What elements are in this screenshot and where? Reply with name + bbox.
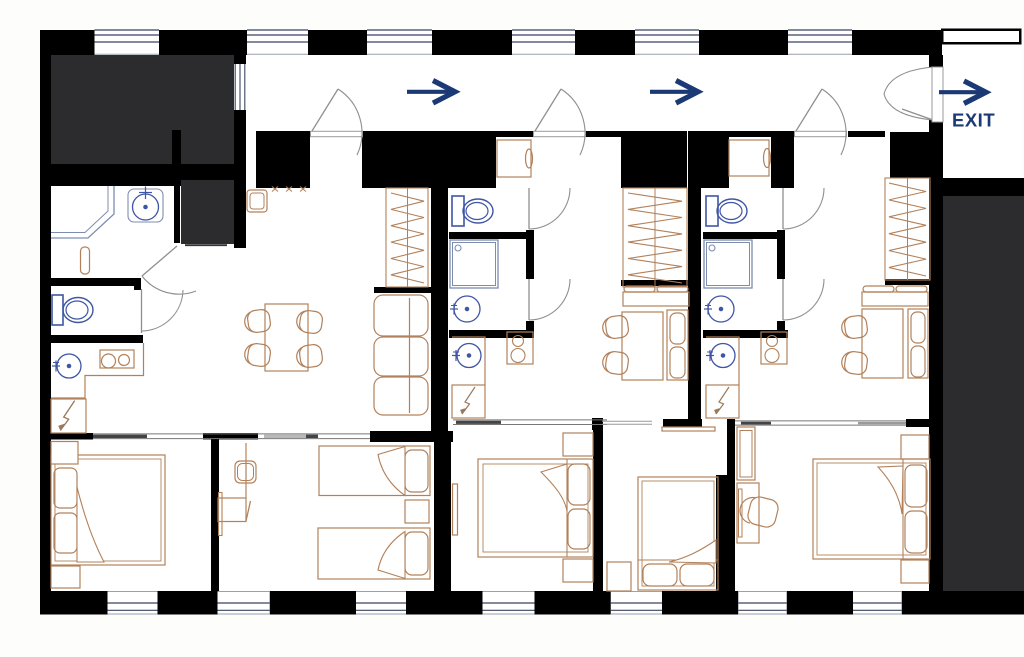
svg-text:EXIT: EXIT: [952, 110, 995, 131]
